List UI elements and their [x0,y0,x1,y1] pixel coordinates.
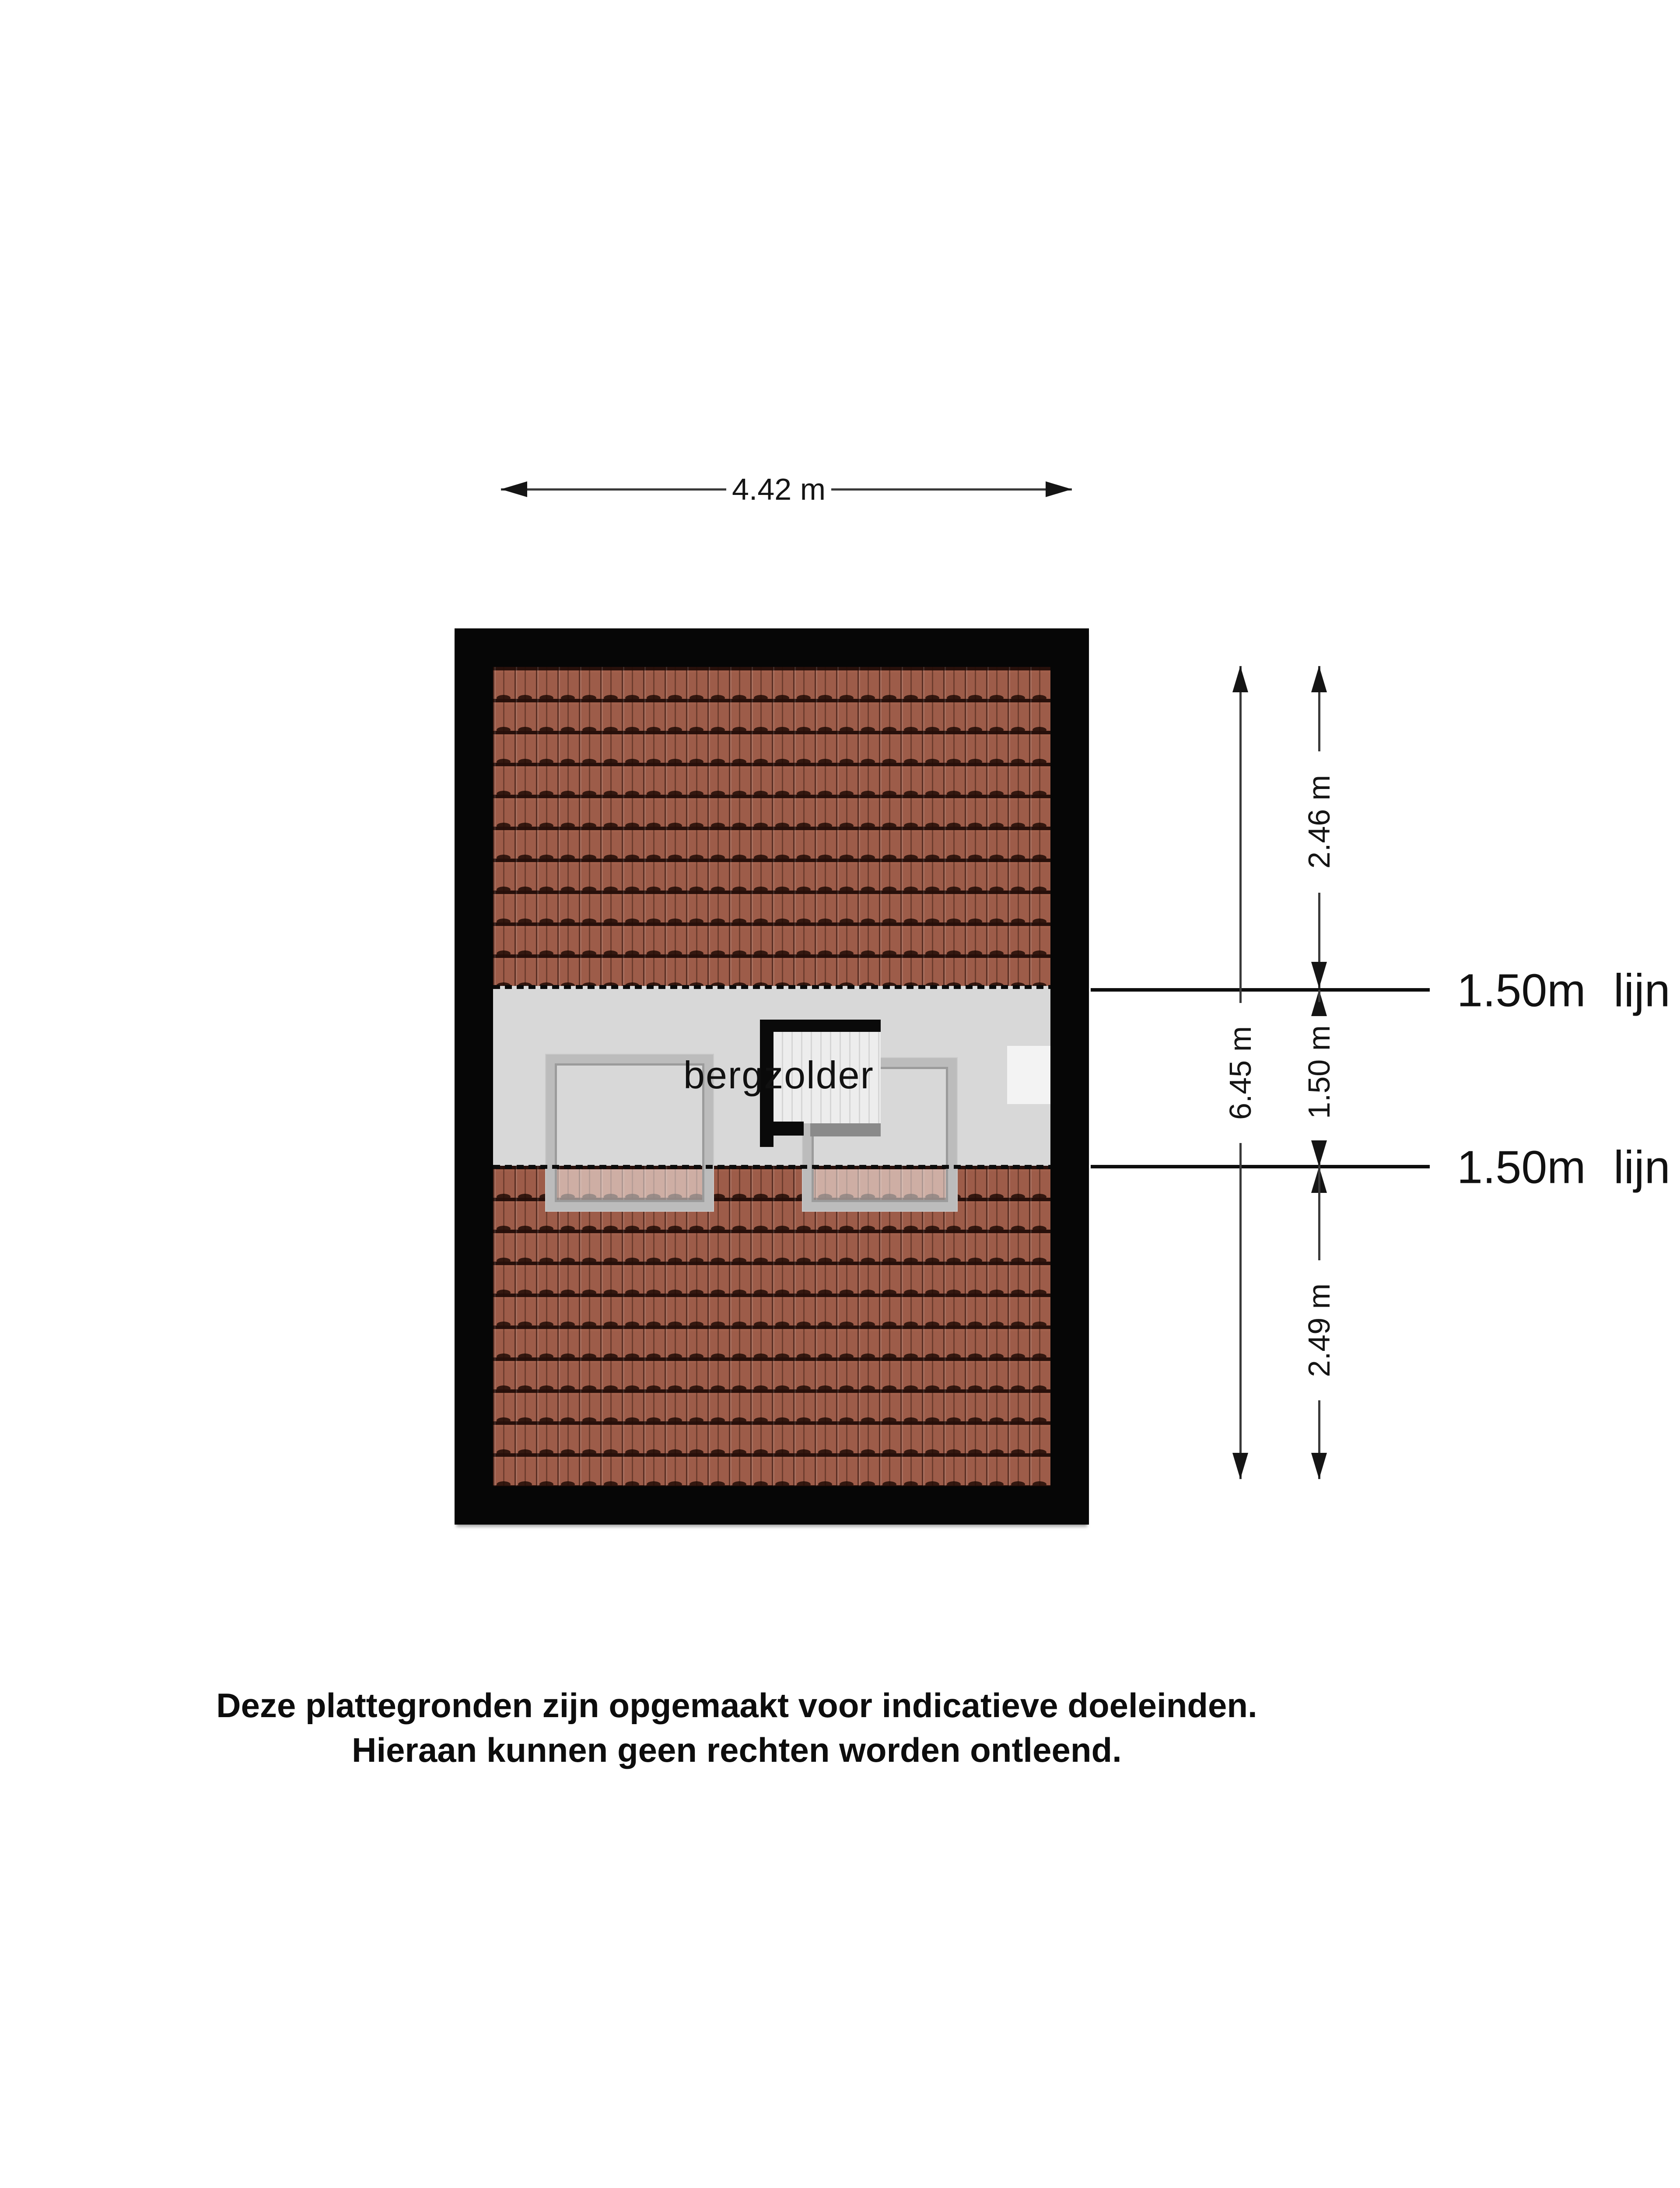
width-dimension-line-left [501,488,726,491]
disclaimer-line-2: Hieraan kunnen geen rechten worden ontle… [0,1728,1473,1772]
roof-surface-bottom [493,1166,1050,1486]
arrow-up-icon [1311,666,1327,692]
total-height-label: 6.45 m [1223,1026,1258,1120]
width-dimension-line-right [831,488,1072,491]
bottom-section-line-a [1318,1167,1320,1260]
total-height-line-upper [1239,666,1242,1003]
top-section-label: 2.46 m [1302,775,1337,869]
disclaimer-line-1: Deze plattegronden zijn opgemaakt voor i… [0,1683,1473,1728]
height-line-dashed-top [493,985,1050,989]
total-height-line-lower [1239,1143,1242,1479]
stair-wall-bottom [760,1122,804,1136]
arrow-left-icon [501,481,527,497]
arrow-right-icon [1046,481,1072,497]
middle-section-line-a [1318,990,1320,1002]
height-line-bottom-label: 1.50m lijn [1457,1141,1670,1194]
stair-handrail [810,1123,881,1136]
height-line-bottom [1091,1165,1430,1168]
floorplan-canvas: 4.42 m [0,0,1680,2188]
disclaimer-text: Deze plattegronden zijn opgemaakt voor i… [0,1683,1473,1772]
arrow-down-icon [1232,1453,1248,1479]
roof-window [1007,1046,1050,1104]
height-line-top-label: 1.50m lijn [1457,964,1670,1017]
roof-surface-top [493,667,1050,986]
arrow-down-icon [1311,1453,1327,1479]
width-dimension-label: 4.42 m [732,472,826,507]
arrow-down-icon [1311,1140,1327,1167]
stair-wall-top [760,1020,881,1032]
height-line-top [1091,988,1430,992]
bottom-section-label: 2.49 m [1302,1283,1337,1377]
middle-section-label: 1.50 m [1302,1025,1337,1119]
arrow-up-icon [1232,666,1248,692]
height-line-dashed-bottom [493,1165,1050,1169]
room-label: bergzolder [683,1052,874,1098]
arrow-down-icon [1311,962,1327,988]
